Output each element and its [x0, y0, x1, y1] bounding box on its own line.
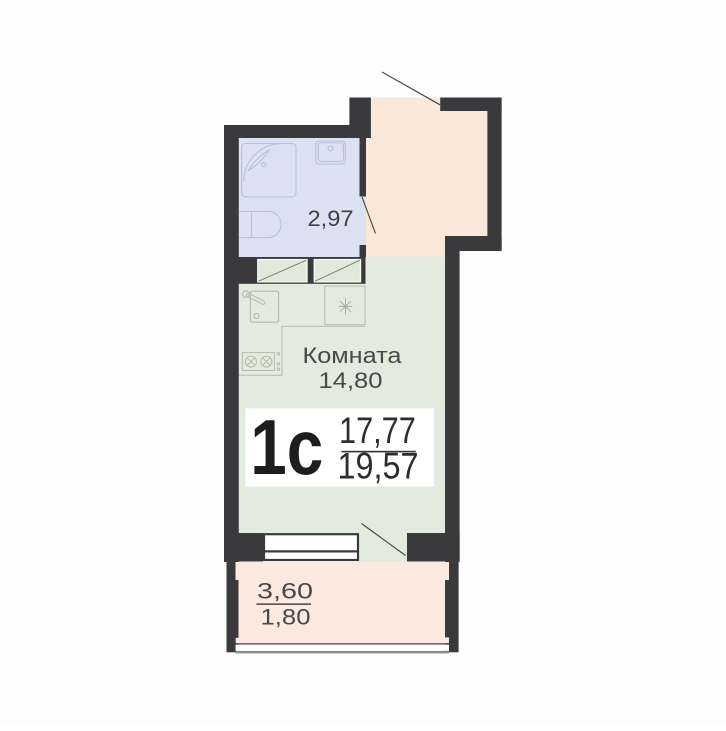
svg-text:Комната: Комната [303, 343, 403, 368]
svg-text:14,80: 14,80 [319, 368, 383, 393]
svg-text:3,60: 3,60 [257, 579, 313, 604]
svg-text:1,80: 1,80 [261, 605, 311, 630]
svg-text:2,97: 2,97 [308, 206, 354, 231]
svg-text:19,57: 19,57 [338, 445, 419, 487]
svg-text:1с: 1с [250, 405, 323, 491]
